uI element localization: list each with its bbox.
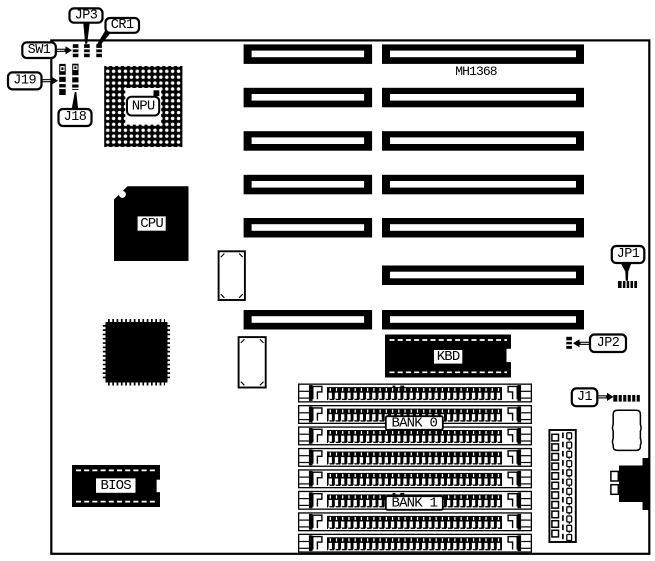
svg-text:BANK 1: BANK 1	[391, 495, 437, 511]
svg-text:JP1: JP1	[617, 247, 640, 262]
svg-text:J1: J1	[577, 390, 593, 405]
svg-text:J19: J19	[13, 74, 36, 89]
svg-text:J18: J18	[64, 110, 87, 125]
svg-text:JP3: JP3	[75, 8, 98, 23]
svg-text:BIOS: BIOS	[100, 478, 131, 494]
svg-text:KBD: KBD	[437, 349, 460, 365]
svg-text:BANK 0: BANK 0	[391, 415, 437, 431]
svg-text:CPU: CPU	[140, 216, 163, 232]
svg-text:NPU: NPU	[132, 99, 155, 115]
svg-text:SW1: SW1	[28, 43, 51, 58]
svg-text:CR1: CR1	[111, 18, 134, 33]
svg-text:JP2: JP2	[597, 336, 620, 351]
svg-text:MH1368: MH1368	[455, 64, 497, 79]
